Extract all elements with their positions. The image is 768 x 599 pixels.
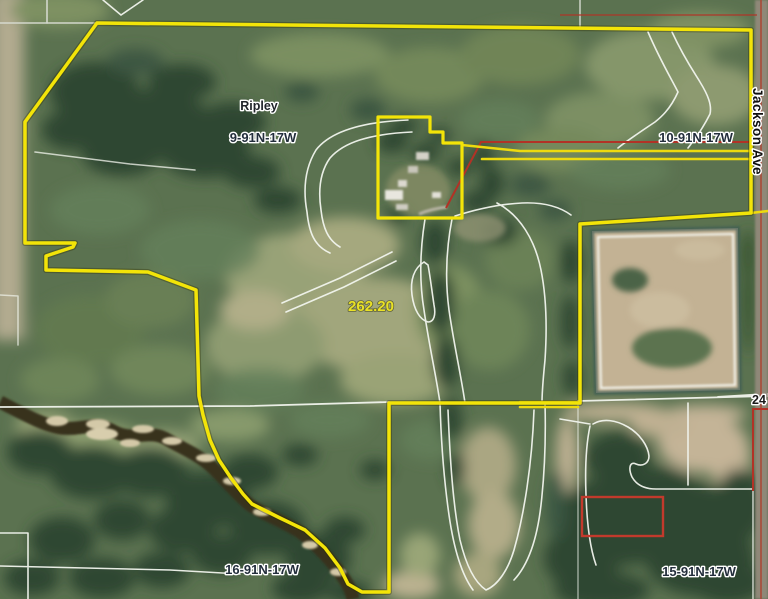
- section-label-ne: 10-91N-17W: [659, 130, 733, 145]
- section-label-nw: 9-91N-17W: [230, 130, 297, 145]
- map-canvas[interactable]: Ripley 9-91N-17W 10-91N-17W 16-91N-17W 1…: [0, 0, 768, 599]
- parcel-acreage-label: 262.20: [348, 298, 394, 315]
- section-label-sw: 16-91N-17W: [225, 562, 299, 577]
- aerial-parcel-map[interactable]: Ripley 9-91N-17W 10-91N-17W 16-91N-17W 1…: [0, 0, 768, 599]
- section-label-se: 15-91N-17W: [662, 564, 736, 579]
- field-tan-right: [592, 228, 740, 393]
- section-number-label: 24: [752, 393, 766, 407]
- road-name-label: Jackson Ave: [750, 88, 765, 175]
- town-label: Ripley: [240, 99, 278, 113]
